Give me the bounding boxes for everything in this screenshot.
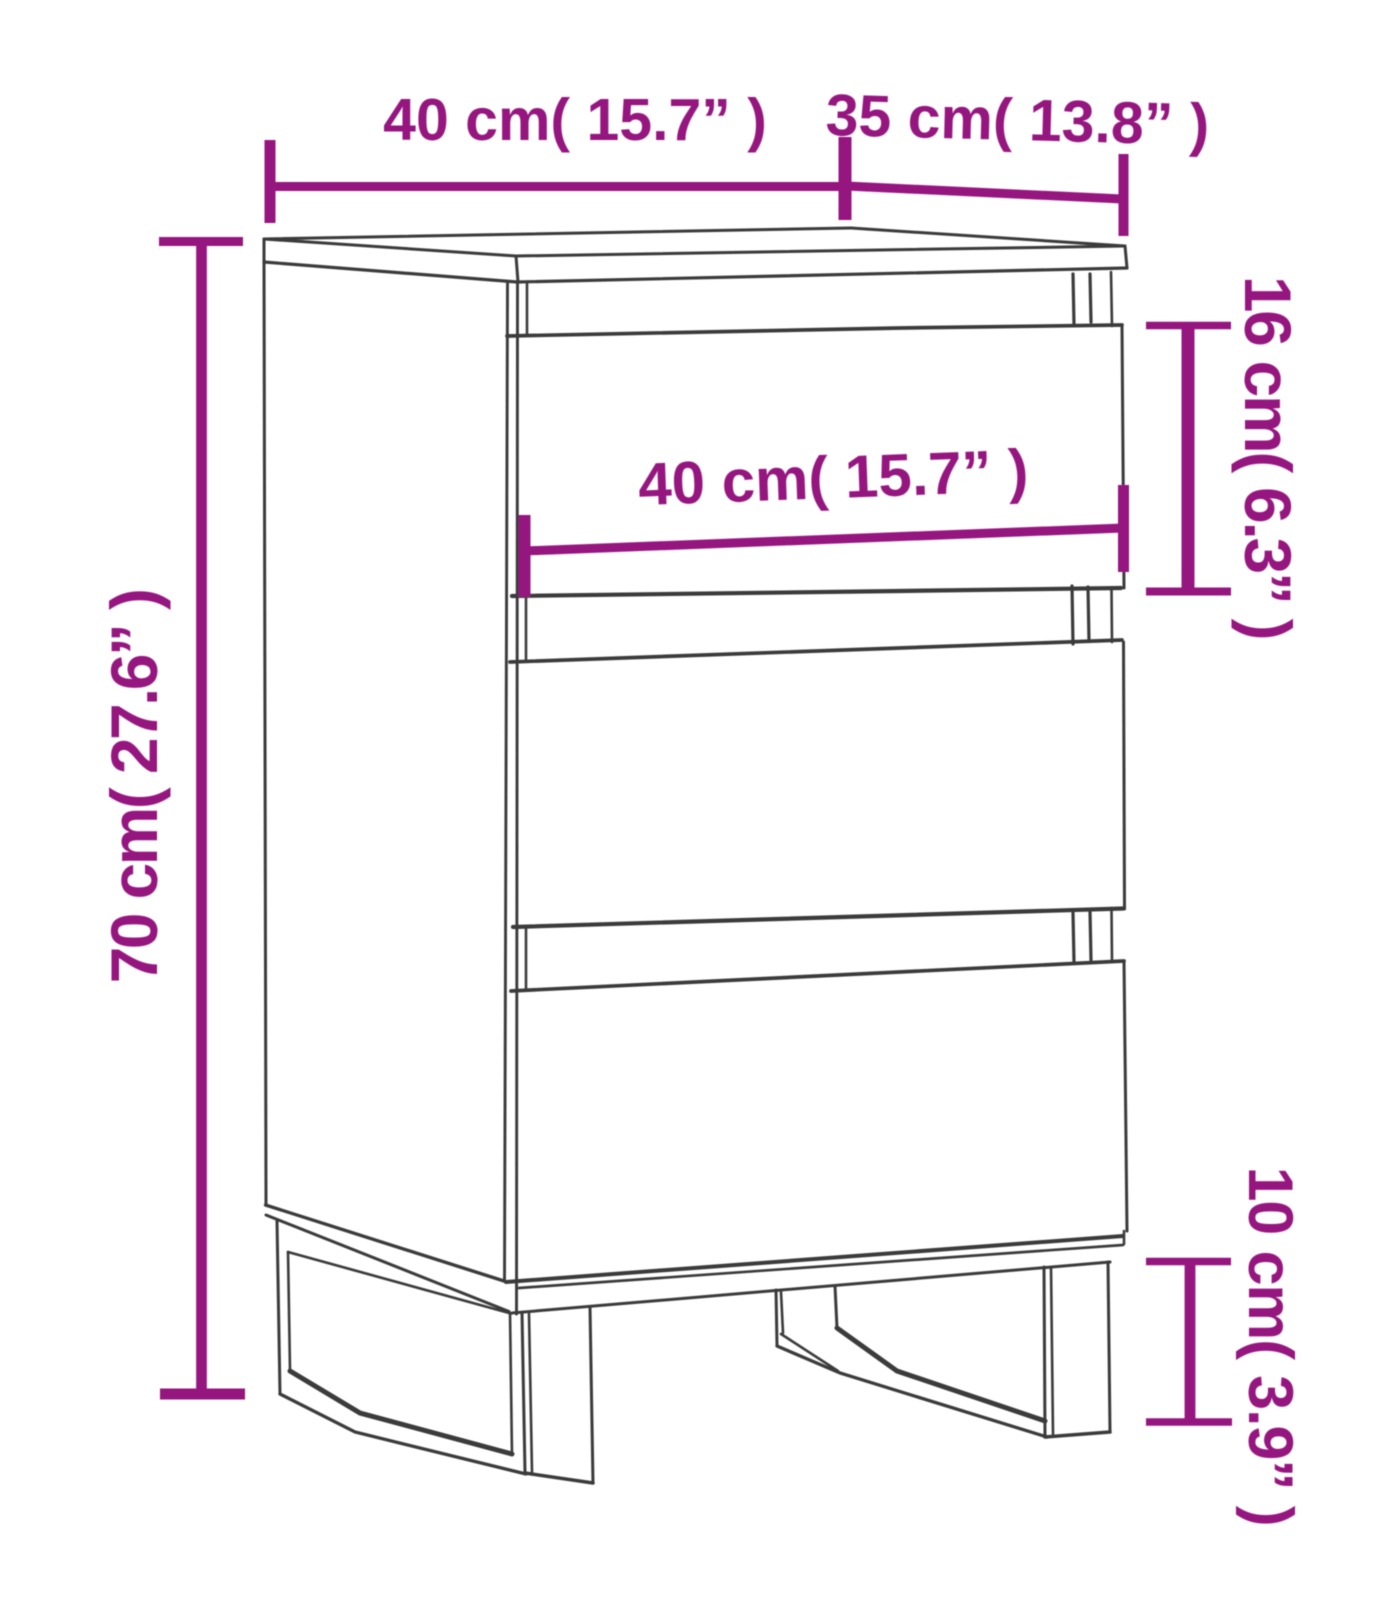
svg-text:40 cm( 15.7” ): 40 cm( 15.7” ) — [383, 87, 767, 153]
svg-text:10 cm( 3.9” ): 10 cm( 3.9” ) — [1235, 1166, 1305, 1525]
svg-text:70 cm( 27.6” ): 70 cm( 27.6” ) — [97, 591, 171, 984]
svg-text:40 cm( 15.7” ): 40 cm( 15.7” ) — [637, 437, 1029, 518]
svg-text:16 cm( 6.3” ): 16 cm( 6.3” ) — [1231, 276, 1305, 639]
svg-text:35 cm( 13.8” ): 35 cm( 13.8” ) — [825, 82, 1210, 158]
